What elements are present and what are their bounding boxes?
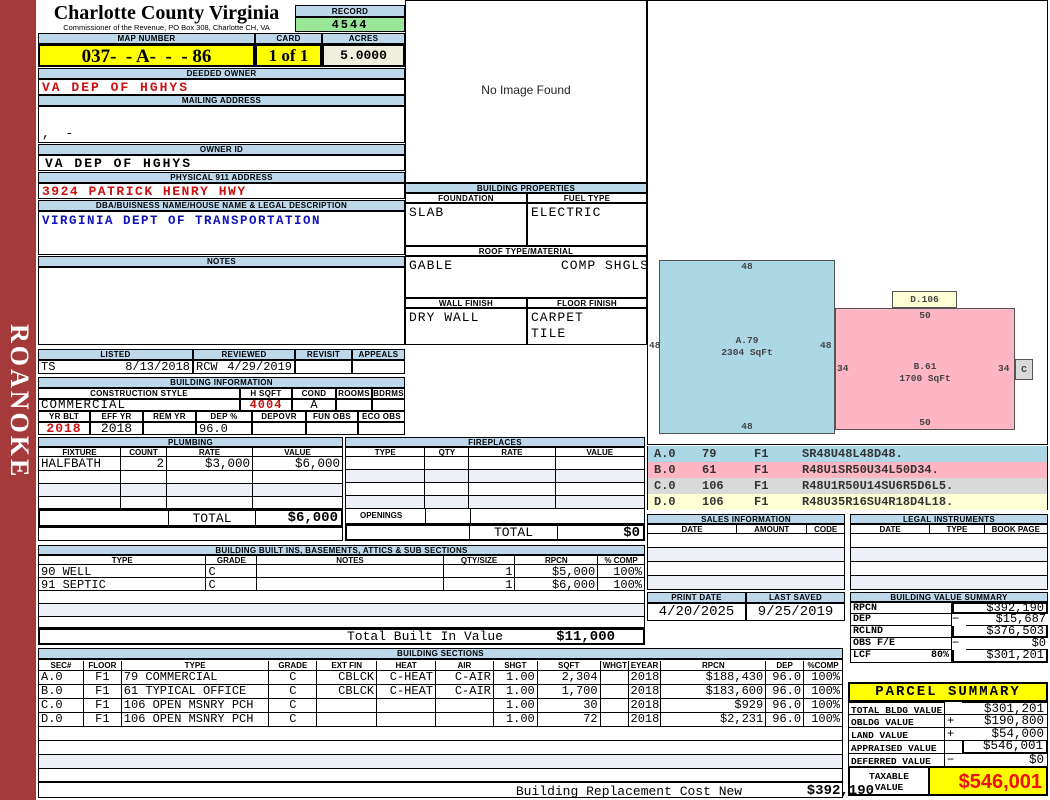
depovr-value[interactable] [252, 422, 306, 435]
cell: 100% [804, 699, 842, 712]
row-pct: 80% [931, 650, 949, 662]
cell: 2,304 [538, 671, 601, 684]
col-header: RPCN [661, 661, 766, 670]
legend-row[interactable]: C.0 106 F1 R48U1R50U14SU6R5D6L5. [648, 478, 1047, 494]
cell: 90 WELL [39, 565, 206, 577]
cell [257, 578, 443, 590]
map-number-label: MAP NUMBER [38, 33, 255, 44]
cell [377, 699, 436, 712]
col-header: AMOUNT [737, 525, 807, 533]
fuel-type-label: FUEL TYPE [527, 193, 647, 203]
cell: 2018 [629, 671, 662, 684]
photo-box: No Image Found [405, 0, 647, 183]
taxable-value: $546,001 [930, 767, 1048, 796]
cell: C-HEAT [377, 671, 436, 684]
built-ins-row[interactable]: 91 SEPTIC C 1 $6,000 100% [38, 578, 645, 591]
legend-row[interactable]: B.0 61 F1 R48U1SR50U34L50D34. [648, 462, 1047, 478]
cell: F1 [84, 713, 122, 726]
building-information-title: BUILDING INFORMATION [38, 377, 405, 388]
col-header: GRADE [269, 661, 317, 670]
col-header: GRADE [206, 556, 257, 564]
hsqft-value[interactable]: 4004 [240, 399, 292, 411]
appeals-value[interactable] [352, 360, 405, 374]
cell [317, 699, 377, 712]
cell: C.0 [648, 479, 702, 493]
wall-finish-label: WALL FINISH [405, 298, 527, 308]
sections-footer-row: Building Replacement Cost New $392,190 [38, 782, 843, 798]
cell [257, 565, 443, 577]
col-header: RATE [469, 448, 555, 456]
cell: 96.0 [766, 699, 804, 712]
built-ins-empty-row [38, 604, 645, 617]
cell: C [269, 713, 317, 726]
ecoobs-label: ECO OBS [358, 411, 405, 422]
section-row[interactable]: C.0 F1 106 OPEN MSNRY PCH C 1.00 30 2018… [38, 699, 843, 713]
plumbing-headers: FIXTURE COUNT RATE VALUE [38, 447, 343, 457]
legal-instruments-title: LEGAL INSTRUMENTS [850, 514, 1048, 524]
last-saved-value: 9/25/2019 [746, 603, 845, 621]
building-sections-headers: SEC# FLOOR TYPE GRADE EXT FIN HEAT AIR S… [38, 659, 843, 671]
plumbing-row[interactable]: HALFBATH 2 $3,000 $6,000 [38, 457, 343, 471]
legal-empty-row [850, 562, 1048, 576]
remyr-label: REM YR [143, 411, 196, 422]
reviewed-value[interactable]: RCW 4/29/2019 [193, 360, 295, 374]
cell: B.0 [39, 685, 84, 698]
cell: F1 [754, 463, 802, 477]
cell: 106 OPEN MSNRY PCH [122, 699, 270, 712]
foundation-label: FOUNDATION [405, 193, 527, 203]
cell: 1.00 [494, 699, 538, 712]
floor-finish-line1: CARPET [528, 309, 646, 325]
plumbing-total-row: TOTAL $6,000 [38, 509, 343, 527]
fireplaces-empty-row [345, 496, 645, 509]
cell: 61 TYPICAL OFFICE [122, 685, 270, 698]
cell: A.0 [39, 671, 84, 684]
col-header: VALUE [253, 448, 342, 456]
section-row[interactable]: A.0 F1 79 COMMERCIAL C CBLCK C-HEAT C-AI… [38, 671, 843, 685]
dim-b-top: 50 [915, 310, 935, 321]
wall-finish-value[interactable]: DRY WALL [405, 308, 527, 345]
mailing-address-value: , - [42, 126, 73, 141]
record-value[interactable]: 4544 [295, 17, 405, 32]
cell [601, 713, 629, 726]
plumbing-total-value: $6,000 [256, 510, 341, 526]
col-header: SQFT [538, 661, 601, 670]
cell: R48U1SR50U34L50D34. [802, 463, 939, 477]
revisit-value[interactable] [295, 360, 352, 374]
cell: C [269, 685, 317, 698]
parcel-summary-title: PARCEL SUMMARY [848, 682, 1048, 702]
row-label: LAND VALUE [848, 728, 945, 741]
sketch-a-sqft: 2304 SqFt [659, 347, 835, 358]
cell: 91 SEPTIC [39, 578, 206, 590]
fireplaces-total-value: $0 [558, 525, 643, 541]
cell: 1.00 [494, 713, 538, 726]
yrblt-value[interactable]: 2018 [38, 422, 90, 435]
floor-finish-line2: TILE [528, 325, 646, 341]
roof-label: ROOF TYPE/MATERIAL [405, 246, 647, 256]
col-header: WHGT [601, 661, 629, 670]
legal-empty-row [850, 548, 1048, 562]
cell [436, 713, 494, 726]
sketch-b-name: B.61 [835, 361, 1015, 372]
dim-a-top: 48 [737, 261, 757, 272]
mailing-address-box[interactable]: , - [38, 106, 405, 143]
roof-value-box[interactable]: GABLE COMP SHGLS [405, 256, 647, 298]
section-empty-row [38, 741, 843, 755]
reviewed-by: RCW [194, 361, 218, 373]
cell: 96.0 [766, 713, 804, 726]
floor-finish-label: FLOOR FINISH [527, 298, 647, 308]
cell: 100% [598, 565, 644, 577]
sketch-b-sqft: 1700 SqFt [835, 373, 1015, 384]
cell: R48U1R50U14SU6R5D6L5. [802, 479, 953, 493]
sales-empty-row [647, 548, 845, 562]
reviewed-date: 4/29/2019 [227, 361, 294, 373]
effyr-value[interactable]: 2018 [90, 422, 143, 435]
cell [317, 713, 377, 726]
print-date-label: PRINT DATE [647, 592, 746, 603]
sketch-legend: A.0 79 F1 SR48U48L48D48. B.0 61 F1 R48U1… [647, 446, 1048, 510]
replacement-cost-label: Building Replacement Cost New [494, 784, 764, 799]
row-op: − [952, 638, 966, 650]
col-header: BOOK PAGE [985, 525, 1047, 533]
sales-headers: DATE AMOUNT CODE [647, 524, 845, 534]
last-saved-label: LAST SAVED [746, 592, 845, 603]
cell: $2,231 [661, 713, 766, 726]
col-header: RATE [167, 448, 253, 456]
section-empty-row [38, 769, 843, 782]
row-label: OBLDG VALUE [848, 715, 945, 728]
funobs-label: FUN OBS [306, 411, 358, 422]
rooms-value[interactable] [336, 399, 372, 411]
cell: C [206, 565, 257, 577]
bdrms-value[interactable] [372, 399, 405, 411]
taxable-label: TAXABLE VALUE [848, 767, 930, 796]
built-ins-total-row: Total Built In Value $11,000 [38, 628, 645, 645]
built-ins-total-label: Total Built In Value [295, 629, 555, 644]
fireplaces-title: FIREPLACES [345, 437, 645, 447]
built-ins-row[interactable]: 90 WELL C 1 $5,000 100% [38, 565, 645, 578]
owner-id-label: OWNER ID [38, 144, 405, 155]
col-header: % COMP [598, 556, 644, 564]
fireplaces-empty-row [345, 457, 645, 470]
cell: A.0 [648, 447, 702, 461]
reviewed-label: REVIEWED [193, 349, 295, 360]
depovr-label: DEPOVR [252, 411, 306, 422]
dep-value[interactable]: 96.0 [196, 422, 252, 435]
cell: 2018 [629, 699, 662, 712]
col-header: TYPE [346, 448, 425, 456]
legend-row[interactable]: A.0 79 F1 SR48U48L48D48. [648, 446, 1047, 462]
col-header: TYPE [39, 556, 206, 564]
cell: 30 [538, 699, 601, 712]
card-value[interactable]: 1 of 1 [255, 44, 322, 67]
notes-box[interactable] [38, 267, 405, 345]
cell: F1 [84, 685, 122, 698]
commissioner-subtitle: Commissioner of the Revenue, PO Box 308,… [38, 23, 295, 32]
sales-empty-row [647, 562, 845, 576]
deeded-owner-label: DEEDED OWNER [38, 68, 405, 79]
built-ins-empty-row [38, 591, 645, 604]
sketch-section-d[interactable]: D.106 [892, 291, 957, 308]
col-header: HEAT [377, 661, 436, 670]
row-op: − [945, 754, 962, 767]
dep-label: DEP % [196, 411, 252, 422]
value-summary-row: LCF 80% $301,201 [850, 650, 1048, 663]
plumbing-empty-row [38, 484, 343, 497]
col-header: CODE [807, 525, 844, 533]
cell: 100% [804, 685, 842, 698]
cell: F1 [84, 699, 122, 712]
cell: F1 [754, 479, 802, 493]
section-row[interactable]: B.0 F1 61 TYPICAL OFFICE C CBLCK C-HEAT … [38, 685, 843, 699]
listed-label: LISTED [38, 349, 193, 360]
cell: SR48U48L48D48. [802, 447, 903, 461]
print-date-value: 4/20/2025 [647, 603, 746, 621]
cell: $6,000 [515, 578, 598, 590]
no-image-placeholder: No Image Found [406, 83, 646, 97]
cell: 1 [444, 565, 516, 577]
sketch-section-c[interactable]: C [1015, 359, 1033, 380]
section-empty-row [38, 755, 843, 769]
col-header: DEP [766, 661, 804, 670]
dba-value: VIRGINIA DEPT OF TRANSPORTATION [39, 212, 404, 228]
legal-empty-row [850, 576, 1048, 590]
fireplaces-empty-row [345, 470, 645, 483]
taxable-label-line2: VALUE [850, 782, 928, 793]
mailing-address-label: MAILING ADDRESS [38, 95, 405, 106]
cell: $5,000 [515, 565, 598, 577]
bdrms-label: BDRMS [372, 388, 405, 399]
cell: CBLCK [317, 685, 377, 698]
fireplaces-empty-row [345, 483, 645, 496]
taxable-value-row: TAXABLE VALUE $546,001 [848, 767, 1048, 796]
cell: 72 [538, 713, 601, 726]
legend-row[interactable]: D.0 106 F1 R48U35R16SU4R18D4L18. [648, 494, 1047, 510]
col-header: RPCN [515, 556, 598, 564]
physical-address-value[interactable]: 3924 PATRICK HENRY HWY [38, 183, 405, 199]
cell: 2018 [629, 685, 662, 698]
record-label: RECORD [295, 5, 405, 17]
cell: B.0 [648, 463, 702, 477]
cell [601, 671, 629, 684]
row-label: LCF [853, 650, 871, 662]
sketch-a-name: A.79 [659, 335, 835, 346]
revisit-label: REVISIT [295, 349, 352, 360]
listed-date: 8/13/2018 [125, 361, 192, 373]
col-header: TYPE [122, 661, 270, 670]
col-header: FIXTURE [39, 448, 121, 456]
roof-type-value: GABLE [409, 258, 453, 273]
taxable-label-line1: TAXABLE [850, 771, 928, 782]
cell: R48U35R16SU4R18D4L18. [802, 495, 953, 509]
cell: 1,700 [538, 685, 601, 698]
ecoobs-value[interactable] [358, 422, 405, 435]
fireplaces-total-label: TOTAL [469, 526, 558, 539]
cell: 100% [804, 671, 842, 684]
cell: 61 [702, 463, 754, 477]
cell: 79 [702, 447, 754, 461]
cell: $183,600 [661, 685, 766, 698]
cell: C [269, 699, 317, 712]
row-label: RCLND [850, 626, 952, 638]
cell: F1 [754, 495, 802, 509]
row-op: − [952, 614, 966, 626]
built-ins-empty-row [38, 617, 645, 628]
cell: $188,430 [661, 671, 766, 684]
cond-value[interactable]: A [292, 399, 336, 411]
col-header: EYEAR [629, 661, 662, 670]
cell: 96.0 [766, 671, 804, 684]
built-ins-title: BUILDING BUILT INS, BASEMENTS, ATTICS & … [38, 545, 645, 555]
construction-style-value[interactable]: COMMERCIAL [38, 399, 240, 411]
listed-by: TS [39, 361, 55, 373]
dba-box[interactable]: VIRGINIA DEPT OF TRANSPORTATION [38, 211, 405, 255]
col-header: AIR [436, 661, 494, 670]
col-header: TYPE [930, 525, 984, 533]
fireplaces-openings-row: OPENINGS [345, 509, 645, 524]
foundation-value[interactable]: SLAB [405, 203, 527, 246]
cell: 106 [702, 479, 754, 493]
cell [601, 685, 629, 698]
col-header: DATE [648, 525, 737, 533]
built-ins-total-value: $11,000 [555, 629, 643, 645]
col-header: DATE [851, 525, 930, 533]
cell: 100% [804, 713, 842, 726]
remyr-value[interactable] [143, 422, 196, 435]
cell: 96.0 [766, 685, 804, 698]
cell: 1.00 [494, 671, 538, 684]
sidebar: ROANOKE [0, 0, 36, 800]
sales-information-title: SALES INFORMATION [647, 514, 845, 524]
cell: C-AIR [436, 671, 494, 684]
cell: $3,000 [167, 457, 253, 470]
appeals-label: APPEALS [352, 349, 405, 360]
notes-label: NOTES [38, 256, 405, 267]
built-ins-headers: TYPE GRADE NOTES QTY/SIZE RPCN % COMP [38, 555, 645, 565]
card-label: CARD [255, 33, 322, 44]
col-header: EXT FIN [317, 661, 377, 670]
cell: 79 COMMERCIAL [122, 671, 270, 684]
cell: C.0 [39, 699, 84, 712]
legal-empty-row [850, 534, 1048, 548]
col-header: QTY/SIZE [444, 556, 516, 564]
cell: C-HEAT [377, 685, 436, 698]
cell: C [269, 671, 317, 684]
cell: HALFBATH [39, 457, 121, 470]
property-record-card: ROANOKE Charlotte County Virginia Commis… [0, 0, 1050, 800]
floor-finish-value[interactable]: CARPET TILE [527, 308, 647, 345]
col-header: SHGT [494, 661, 538, 670]
cell: F1 [754, 447, 802, 461]
sales-empty-row [647, 576, 845, 590]
fireplaces-total-row: TOTAL $0 [345, 524, 645, 541]
cell: 106 [702, 495, 754, 509]
row-label: RPCN [850, 602, 952, 614]
cell: $6,000 [253, 457, 342, 470]
deeded-owner-value[interactable]: VA DEP OF HGHYS [38, 79, 405, 95]
cell [377, 713, 436, 726]
parcel-row: DEFERRED VALUE − $0 [848, 754, 1048, 767]
cell: F1 [84, 671, 122, 684]
map-number-value[interactable]: 037- - A- - - 86 [38, 44, 255, 67]
acres-label: ACRES [322, 33, 405, 44]
physical-address-label: PHYSICAL 911 ADDRESS [38, 172, 405, 183]
cell [436, 699, 494, 712]
section-row[interactable]: D.0 F1 106 OPEN MSNRY PCH C 1.00 72 2018… [38, 713, 843, 727]
cell: CBLCK [317, 671, 377, 684]
cell: C-AIR [436, 685, 494, 698]
cell: 1.00 [494, 685, 538, 698]
cell: C [206, 578, 257, 590]
row-value: $301,201 [952, 650, 1048, 663]
county-title: Charlotte County Virginia [38, 2, 295, 25]
row-value: $0 [962, 754, 1048, 767]
col-header: SEC# [39, 661, 84, 670]
plumbing-footer-strip [38, 527, 343, 541]
cell: 100% [598, 578, 644, 590]
legal-headers: DATE TYPE BOOK PAGE [850, 524, 1048, 534]
plumbing-title: PLUMBING [38, 437, 343, 447]
value-summary-row: RCLND $376,503 [850, 626, 1048, 638]
sidebar-vertical-label: ROANOKE [2, 292, 34, 512]
roof-material-value: COMP SHGLS [561, 258, 649, 273]
building-properties-title: BUILDING PROPERTIES [405, 183, 647, 193]
owner-id-value[interactable]: VA DEP OF HGHYS [38, 155, 405, 171]
fuel-type-value[interactable]: ELECTRIC [527, 203, 647, 246]
row-label: APPRAISED VALUE [848, 741, 945, 754]
col-header: VALUE [556, 448, 644, 456]
cell: 2 [121, 457, 167, 470]
row-op: + [945, 728, 962, 741]
dim-b-bottom: 50 [915, 417, 935, 428]
col-header: COUNT [121, 448, 167, 456]
section-empty-row [38, 727, 843, 741]
row-label: DEP [850, 614, 952, 626]
cell: D.0 [648, 495, 702, 509]
plumbing-empty-row [38, 471, 343, 484]
funobs-value[interactable] [306, 422, 358, 435]
sales-empty-row [647, 534, 845, 548]
openings-label: OPENINGS [346, 509, 426, 523]
row-label: DEFERRED VALUE [848, 754, 945, 767]
cell: 106 OPEN MSNRY PCH [122, 713, 270, 726]
dba-label: DBA/BUISNESS NAME/HOUSE NAME & LEGAL DES… [38, 200, 405, 211]
row-label: OBS F/E [850, 638, 952, 650]
plumbing-total-label: TOTAL [168, 511, 256, 525]
cell: 2018 [629, 713, 662, 726]
sketch-panel: D.106 C 48 48 48 48 A.79 2304 SqFt 50 34… [647, 0, 1048, 445]
row-label: TOTAL BLDG VALUE [848, 702, 945, 715]
fireplaces-headers: TYPE QTY RATE VALUE [345, 447, 645, 457]
cell: $929 [661, 699, 766, 712]
plumbing-empty-row [38, 497, 343, 509]
dim-a-bottom: 48 [737, 421, 757, 432]
col-header: %COMP [804, 661, 842, 670]
col-header: NOTES [257, 556, 443, 564]
building-sections-title: BUILDING SECTIONS [38, 648, 843, 659]
cell: 1 [444, 578, 516, 590]
rooms-label: ROOMS [336, 388, 372, 399]
cell [601, 699, 629, 712]
listed-value[interactable]: TS 8/13/2018 [38, 360, 193, 374]
col-header: QTY [425, 448, 469, 456]
col-header: FLOOR [84, 661, 122, 670]
acres-value[interactable]: 5.0000 [322, 44, 405, 67]
cell: D.0 [39, 713, 84, 726]
